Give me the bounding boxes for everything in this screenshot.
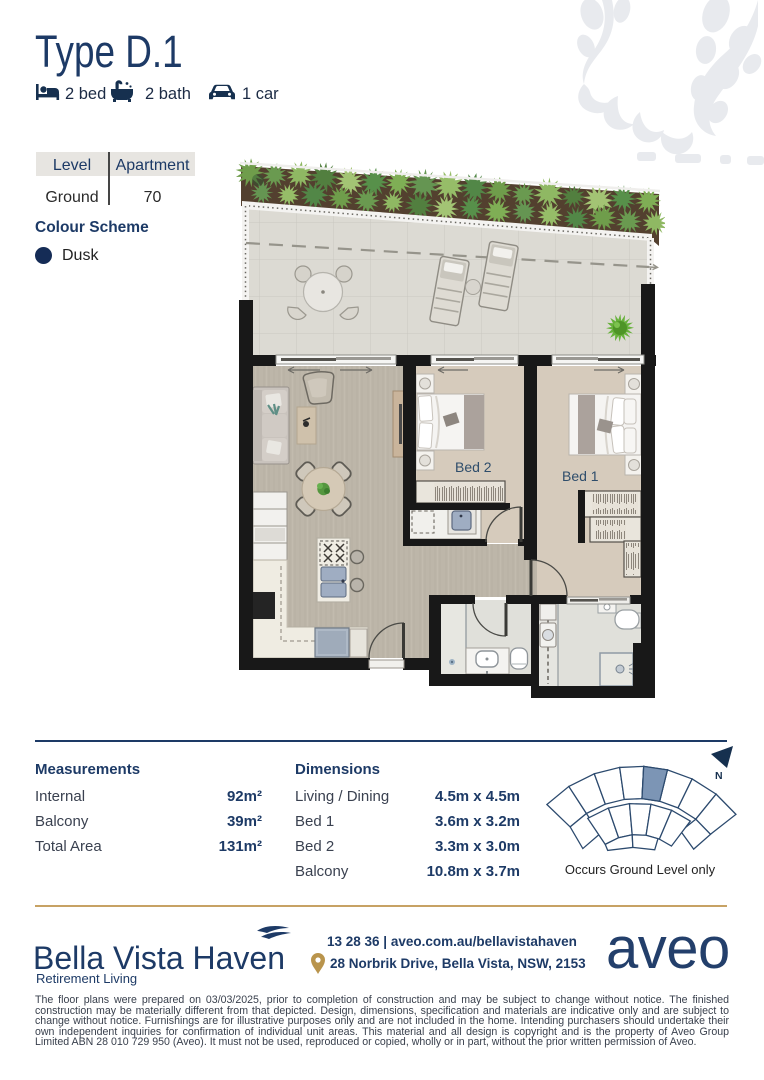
svg-text:2 bath: 2 bath xyxy=(145,85,191,103)
svg-text:2 bed: 2 bed xyxy=(65,85,106,103)
svg-text:N: N xyxy=(715,770,723,782)
svg-text:1 car: 1 car xyxy=(242,85,279,103)
svg-text:Bed 1: Bed 1 xyxy=(562,468,599,484)
svg-text:Bed 2: Bed 2 xyxy=(455,459,492,475)
